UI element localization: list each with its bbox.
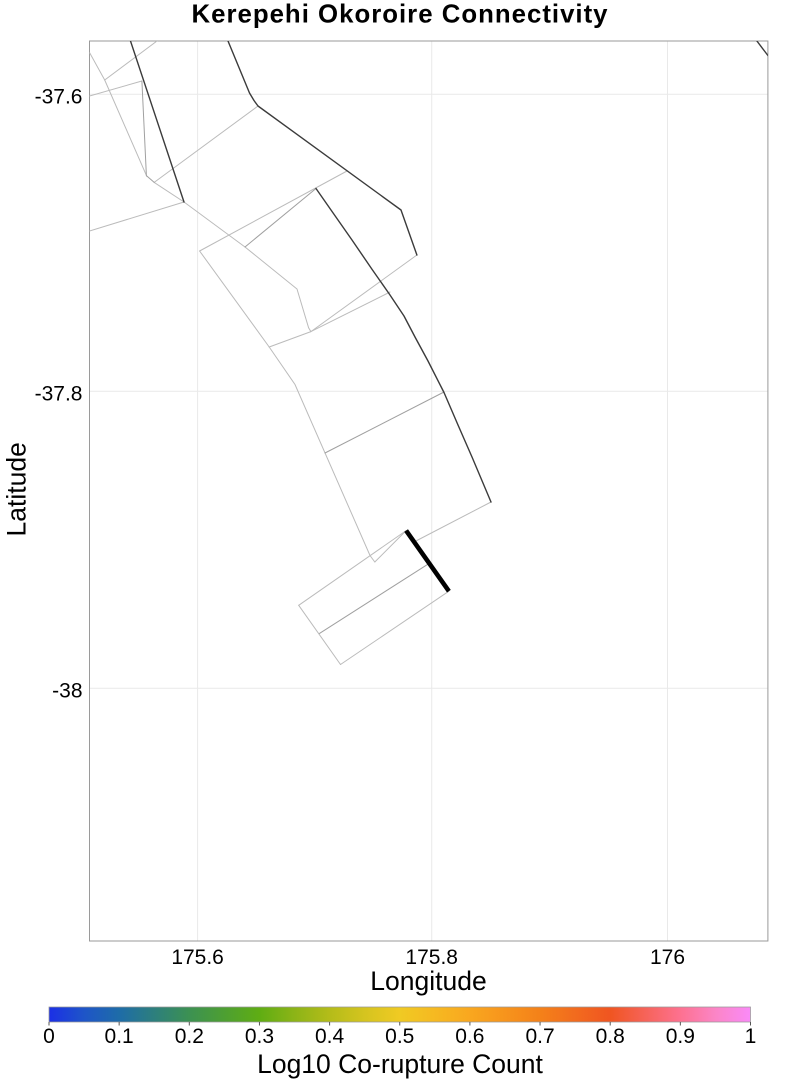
svg-text:-37.6: -37.6 <box>35 85 83 108</box>
svg-text:Log10 Co-rupture Count: Log10 Co-rupture Count <box>257 1049 543 1079</box>
svg-text:1: 1 <box>745 1025 757 1048</box>
svg-text:0.4: 0.4 <box>315 1025 345 1048</box>
svg-text:0.5: 0.5 <box>385 1025 414 1048</box>
svg-text:0.2: 0.2 <box>175 1025 204 1048</box>
svg-text:176: 176 <box>650 946 685 969</box>
svg-text:Kerepehi Okoroire Connectivity: Kerepehi Okoroire Connectivity <box>191 1 608 29</box>
svg-text:0.9: 0.9 <box>666 1025 695 1048</box>
svg-text:175.6: 175.6 <box>171 946 224 969</box>
svg-text:-37.8: -37.8 <box>35 382 83 405</box>
svg-text:Latitude: Latitude <box>2 442 32 536</box>
svg-text:-38: -38 <box>52 679 82 702</box>
svg-text:0: 0 <box>43 1025 55 1048</box>
svg-text:0.1: 0.1 <box>105 1025 134 1048</box>
svg-text:0.3: 0.3 <box>245 1025 274 1048</box>
svg-text:0.8: 0.8 <box>596 1025 625 1048</box>
svg-text:0.6: 0.6 <box>455 1025 484 1048</box>
svg-text:0.7: 0.7 <box>525 1025 554 1048</box>
svg-text:Longitude: Longitude <box>370 966 486 996</box>
